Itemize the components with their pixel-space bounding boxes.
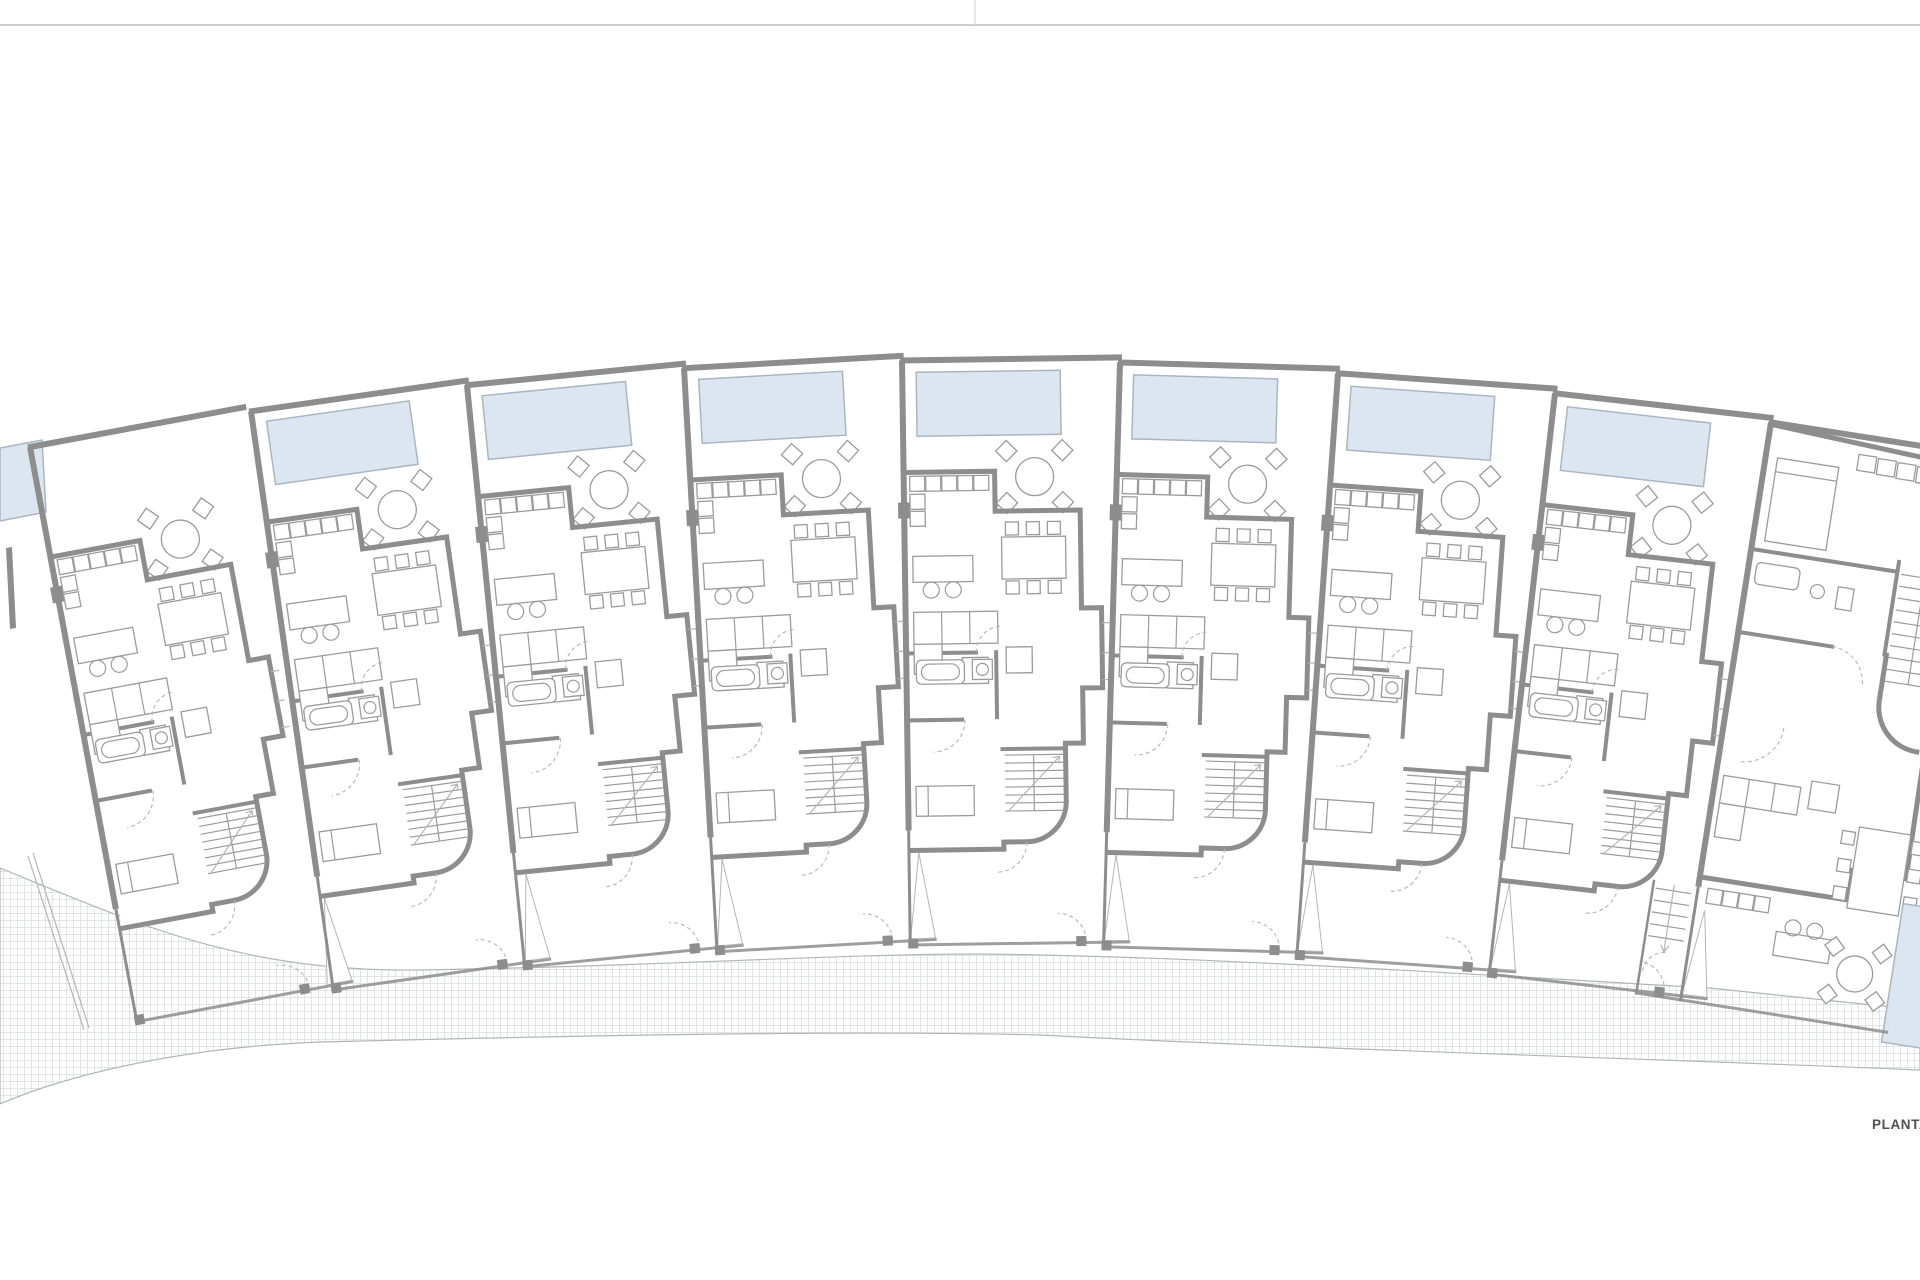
plan-title-label: PLANTA xyxy=(1872,1117,1920,1132)
unit-plan-4 xyxy=(678,353,937,956)
unit-plan-0-sliver xyxy=(0,440,46,629)
plot-hatch-band xyxy=(0,868,1920,1104)
plan-sheet: PLANTA xyxy=(0,0,1920,1280)
unit-plan-5 xyxy=(896,354,1130,948)
floor-plan-svg xyxy=(0,0,1920,1280)
